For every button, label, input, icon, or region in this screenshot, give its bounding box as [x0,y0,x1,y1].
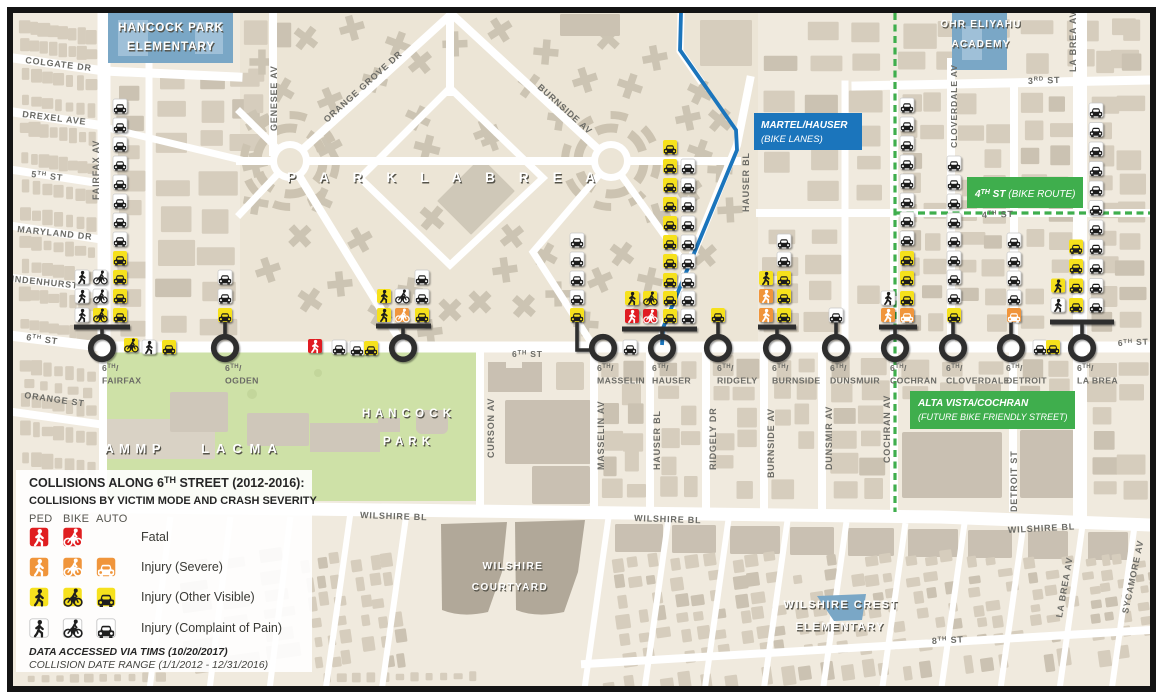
svg-text:COLLISIONS BY VICTIM MODE AND: COLLISIONS BY VICTIM MODE AND CRASH SEVE… [29,495,318,507]
svg-text:4TH ST (BIKE ROUTE): 4TH ST (BIKE ROUTE) [974,189,1075,200]
svg-text:3RD ST: 3RD ST [1028,75,1061,86]
svg-text:RIDGELY: RIDGELY [717,376,758,386]
svg-text:DETROIT: DETROIT [1006,376,1047,386]
svg-text:CLOVERDALE: CLOVERDALE [946,376,1010,386]
svg-text:P A R K: P A R K [383,436,431,448]
svg-text:COCHRAN: COCHRAN [890,376,937,386]
svg-text:LA BREA: LA BREA [1077,376,1118,386]
svg-text:DATA ACCESSED VIA TIMS (10/20/: DATA ACCESSED VIA TIMS (10/20/2017) [29,646,228,658]
svg-text:GENESEE AV: GENESEE AV [269,65,279,131]
svg-text:MASSELIN: MASSELIN [597,376,645,386]
svg-text:FAIRFAX: FAIRFAX [102,376,141,386]
svg-text:CLOVERDALE AV: CLOVERDALE AV [949,64,959,148]
svg-text:Injury (Other Visible): Injury (Other Visible) [141,590,255,604]
svg-text:ACADEMY: ACADEMY [952,39,1011,50]
svg-text:COURTYARD: COURTYARD [472,582,548,593]
svg-text:MASSELIN AV: MASSELIN AV [596,401,606,470]
svg-text:LA BREA AV: LA BREA AV [1068,11,1078,72]
svg-text:WILSHIRE: WILSHIRE [483,561,544,572]
svg-text:BURNSIDE AV: BURNSIDE AV [766,408,776,478]
svg-text:COCHRAN AV: COCHRAN AV [882,395,892,463]
svg-text:Injury (Severe): Injury (Severe) [141,560,223,574]
svg-text:L A C M A: L A C M A [201,441,279,456]
svg-text:H A N C O C K: H A N C O C K [362,408,452,420]
svg-text:MARTEL/HAUSER: MARTEL/HAUSER [761,120,848,131]
svg-text:HAUSER: HAUSER [652,376,691,386]
svg-text:WILSHIRE CREST: WILSHIRE CREST [783,599,898,611]
svg-text:AUTO: AUTO [96,513,128,525]
svg-text:ELEMENTARY: ELEMENTARY [795,621,885,633]
svg-text:FAIRFAX AV: FAIRFAX AV [91,140,101,200]
svg-text:(BIKE LANES): (BIKE LANES) [761,134,823,145]
svg-text:Fatal: Fatal [141,530,169,544]
svg-text:DUNSMIR AV: DUNSMIR AV [824,406,834,470]
svg-text:HAUSER BL: HAUSER BL [652,410,662,470]
svg-text:RIDGELY DR: RIDGELY DR [708,407,718,470]
svg-text:8TH ST: 8TH ST [932,634,964,646]
svg-text:BIKE: BIKE [63,513,89,525]
svg-text:HANCOCK PARK: HANCOCK PARK [118,22,224,34]
svg-text:BURNSIDE: BURNSIDE [772,376,821,386]
svg-text:Injury (Complaint of Pain): Injury (Complaint of Pain) [141,621,282,635]
svg-text:(FUTURE BIKE FRIENDLY STREET): (FUTURE BIKE FRIENDLY STREET) [918,412,1068,422]
svg-text:6TH ST: 6TH ST [512,349,543,359]
svg-text:A M M P: A M M P [104,441,161,456]
svg-text:6TH ST: 6TH ST [1118,336,1149,348]
svg-text:HAUSER BL: HAUSER BL [741,152,751,212]
svg-text:COLLISION DATE RANGE (1/1/2012: COLLISION DATE RANGE (1/1/2012 - 12/31/2… [29,659,268,671]
svg-text:ALTA VISTA/COCHRAN: ALTA VISTA/COCHRAN [917,398,1029,409]
svg-text:ELEMENTARY: ELEMENTARY [127,41,215,53]
svg-text:PED: PED [29,513,53,525]
svg-text:OHR ELIYAHU: OHR ELIYAHU [940,19,1021,30]
svg-text:DUNSMUIR: DUNSMUIR [830,376,880,386]
svg-text:CURSON AV: CURSON AV [486,398,496,458]
svg-text:4TH ST: 4TH ST [982,209,1014,220]
svg-text:DETROIT ST: DETROIT ST [1009,451,1019,513]
svg-text:OGDEN: OGDEN [225,376,259,386]
